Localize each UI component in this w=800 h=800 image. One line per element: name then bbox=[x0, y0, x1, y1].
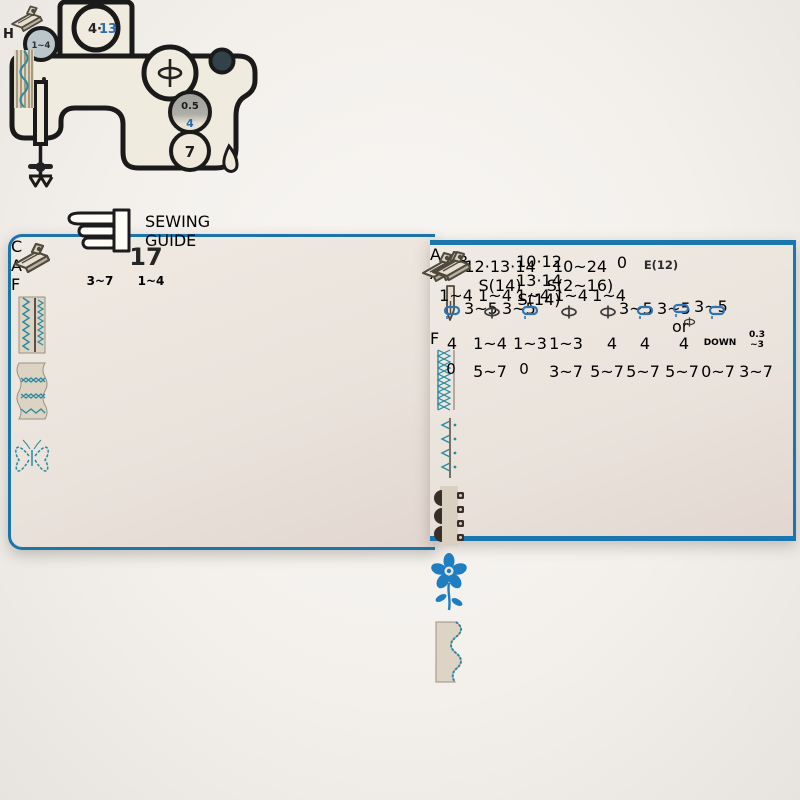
foot-letter-h: H bbox=[3, 27, 14, 42]
needle-position-blue-icon bbox=[442, 304, 464, 324]
length-value: 5~7 bbox=[665, 362, 699, 381]
right-card: 8 12·13·14 S(14) 10·12 13·14 S(14) 10~24… bbox=[430, 240, 796, 541]
width-value: 1~3 bbox=[513, 334, 547, 353]
stitch-width-black-icon bbox=[560, 304, 578, 324]
bottom-dial-label: 7 bbox=[185, 143, 195, 161]
presser-foot-icon bbox=[9, 2, 45, 32]
length-value: 0 bbox=[519, 360, 529, 378]
width-value: 4 bbox=[607, 334, 617, 353]
width-value: 1~3 bbox=[549, 334, 583, 353]
width-value: 4 bbox=[640, 334, 650, 353]
tension-value: 1~4 bbox=[554, 286, 588, 305]
butterfly-applique-sample-icon bbox=[11, 426, 435, 492]
dark-knob bbox=[211, 50, 234, 73]
stitch-width-black-icon bbox=[599, 304, 617, 324]
presser-foot-drawing bbox=[29, 176, 52, 186]
title-line-1: SEWING bbox=[145, 212, 210, 231]
width-value-range: 0.3 ~3 bbox=[749, 330, 765, 350]
stretch-stitch-sample-icon bbox=[0, 47, 48, 111]
width-value: 4 bbox=[679, 334, 689, 353]
mid-dial-black: 0.5 bbox=[181, 101, 199, 112]
presser-foot-icon bbox=[433, 247, 473, 281]
needle-position-blue-icon bbox=[635, 304, 657, 324]
width-value-down: DOWN bbox=[704, 338, 737, 348]
needle-position-blue-icon bbox=[520, 304, 542, 324]
pointing-hand-icon bbox=[66, 208, 132, 254]
length-value: 5~7 bbox=[590, 362, 624, 381]
length-value: 3~7 bbox=[549, 362, 583, 381]
overcast-stitch-sample-icon bbox=[430, 348, 793, 416]
sewing-guide-title: SEWING GUIDE bbox=[145, 212, 210, 250]
shell-tuck-sample-icon bbox=[430, 484, 793, 552]
length-value: 3~7 bbox=[739, 362, 773, 381]
title-line-2: GUIDE bbox=[145, 231, 210, 250]
smocking-sample-icon bbox=[11, 360, 435, 426]
length-value: 5~7 bbox=[626, 362, 660, 381]
width-value: 1~4 bbox=[473, 334, 507, 353]
blind-hem-sample-icon bbox=[430, 416, 793, 484]
scallop-edge-sample-icon bbox=[430, 620, 793, 688]
width-value: 4 bbox=[447, 334, 457, 353]
top-dial-blue: 13 bbox=[99, 22, 117, 37]
flower-applique-sample-icon bbox=[430, 552, 793, 620]
length-value: 0 bbox=[446, 360, 456, 378]
foot-letter-f: F bbox=[430, 329, 439, 348]
stitch-width-black-icon bbox=[683, 313, 696, 332]
pattern-code-e12: E(12) bbox=[644, 258, 678, 272]
needle-position-blue-icon bbox=[707, 304, 729, 324]
length-value: 5~7 bbox=[473, 362, 507, 381]
pattern-number-0: 0 bbox=[617, 253, 627, 272]
photo-background: 17 3~7 1~4 C A F bbox=[0, 0, 800, 800]
stitch-width-black-icon bbox=[483, 304, 501, 324]
mid-dial-blue: 4 bbox=[186, 117, 194, 130]
length-value: 0~7 bbox=[701, 362, 735, 381]
